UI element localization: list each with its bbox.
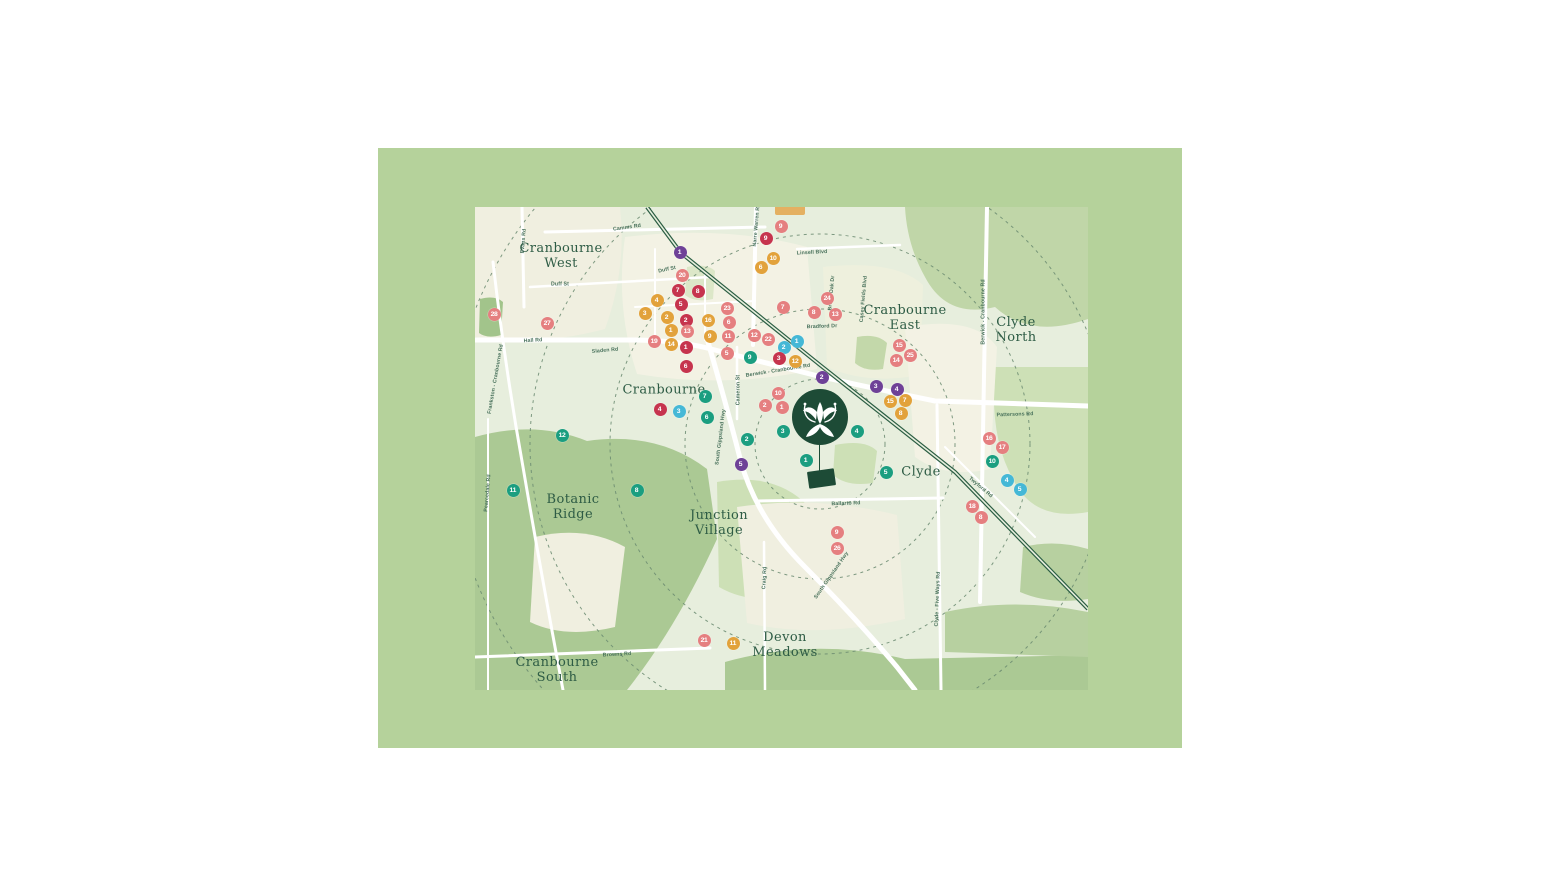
marker-number: 2 [665,313,668,320]
marker-number: 5 [1018,485,1021,492]
marker-number: 21 [701,636,708,643]
marker-number: 14 [668,340,675,347]
map-marker-salmon-19[interactable]: 19 [648,335,661,348]
map-marker-salmon-9[interactable]: 9 [775,220,788,233]
map-marker-salmon-6[interactable]: 6 [723,316,736,329]
map-marker-salmon-28[interactable]: 28 [488,308,501,321]
suburb-label: Cranbourne [622,384,705,399]
map-marker-red-4[interactable]: 4 [654,403,667,416]
marker-number: 3 [781,427,784,434]
marker-number: 1 [804,456,807,463]
marker-number: 1 [684,343,687,350]
map-marker-red-9[interactable]: 9 [760,232,773,245]
map-marker-orange-10[interactable]: 10 [767,252,780,265]
marker-number: 7 [781,303,784,310]
map-marker-purple-2[interactable]: 2 [816,371,829,384]
map-marker-salmon-7[interactable]: 7 [777,301,790,314]
marker-number: 4 [1005,476,1008,483]
map-marker-salmon-11[interactable]: 11 [722,330,735,343]
suburb-label: Botanic Ridge [547,493,600,523]
map-marker-salmon-20[interactable]: 20 [676,269,689,282]
map-marker-orange-12[interactable]: 12 [789,355,802,368]
marker-number: 12 [751,331,758,338]
marker-number: 1 [780,403,783,410]
marker-number: 12 [792,357,799,364]
map-marker-purple-3[interactable]: 3 [870,380,883,393]
marker-number: 24 [824,294,831,301]
map-marker-salmon-14[interactable]: 14 [890,354,903,367]
marker-number: 10 [775,389,782,396]
marker-number: 16 [986,434,993,441]
map-marker-teal-12[interactable]: 12 [556,429,569,442]
flower-icon [798,395,842,439]
map-marker-cyan-1[interactable]: 1 [791,335,804,348]
marker-number: 26 [834,544,841,551]
marker-number: 12 [559,431,566,438]
marker-number: 9 [835,528,838,535]
map-marker-teal-4[interactable]: 4 [851,425,864,438]
map-marker-cyan-3[interactable]: 3 [673,405,686,418]
map-marker-orange-16[interactable]: 16 [702,314,715,327]
marker-number: 15 [887,397,894,404]
marker-number: 25 [907,351,914,358]
map-marker-red-5[interactable]: 5 [675,298,688,311]
map-marker-teal-11[interactable]: 11 [507,484,520,497]
suburb-label: Cranbourne East [863,304,946,334]
map-marker-red-8[interactable]: 8 [692,285,705,298]
road-label: Duff St [551,281,569,287]
marker-number: 23 [724,304,731,311]
marker-number: 2 [782,343,785,350]
map-marker-teal-1[interactable]: 1 [800,454,813,467]
marker-number: 3 [643,309,646,316]
suburb-label: Devon Meadows [752,631,818,661]
marker-number: 8 [635,486,638,493]
marker-number: 14 [893,356,900,363]
marker-number: 9 [764,234,767,241]
marker-number: 4 [655,296,658,303]
map-marker-orange-4[interactable]: 4 [651,294,664,307]
map-marker-orange-2[interactable]: 2 [661,311,674,324]
marker-number: 5 [725,349,728,356]
suburb-label: Clyde North [995,316,1036,346]
map-marker-salmon-12[interactable]: 12 [748,329,761,342]
map-marker-salmon-9[interactable]: 9 [831,526,844,539]
map-marker-salmon-17[interactable]: 17 [996,441,1009,454]
marker-number: 11 [510,486,517,493]
road-label: Cameron St [735,375,741,405]
estate-location-map: Cranbourne WestCranbourneCranbourne East… [475,207,1088,690]
marker-number: 2 [820,373,823,380]
marker-number: 19 [651,337,658,344]
marker-number: 10 [989,457,996,464]
map-marker-red-3[interactable]: 3 [773,352,786,365]
map-marker-salmon-27[interactable]: 27 [541,317,554,330]
map-marker-salmon-24[interactable]: 24 [821,292,834,305]
map-marker-orange-7[interactable]: 7 [899,394,912,407]
marker-number: 22 [765,335,772,342]
marker-number: 3 [874,382,877,389]
map-marker-teal-7[interactable]: 7 [699,390,712,403]
map-marker-cyan-5[interactable]: 5 [1014,483,1027,496]
map-marker-salmon-21[interactable]: 21 [698,634,711,647]
road-label: Ballarto Rd [831,500,860,507]
road-label: Bradford Dr [807,323,838,330]
marker-number: 5 [884,468,887,475]
map-marker-orange-1[interactable]: 1 [665,324,678,337]
map-marker-orange-6[interactable]: 6 [755,261,768,274]
map-marker-orange-9[interactable]: 9 [704,330,717,343]
map-marker-red-6[interactable]: 6 [680,360,693,373]
marker-number: 9 [708,332,711,339]
map-marker-teal-9[interactable]: 9 [744,351,757,364]
marker-number: 6 [684,362,687,369]
marker-number: 6 [759,263,762,270]
marker-number: 1 [678,248,681,255]
road-label: Hall Rd [523,337,542,344]
map-marker-orange-14[interactable]: 14 [665,338,678,351]
marker-number: 10 [770,254,777,261]
marker-number: 1 [795,337,798,344]
map-marker-red-7[interactable]: 7 [672,284,685,297]
marker-number: 8 [899,409,902,416]
marker-number: 3 [677,407,680,414]
map-marker-salmon-8[interactable]: 8 [808,306,821,319]
map-marker-salmon-13[interactable]: 13 [829,308,842,321]
marker-number: 7 [703,392,706,399]
map-marker-salmon-1[interactable]: 1 [776,401,789,414]
map-marker-salmon-13[interactable]: 13 [681,325,694,338]
marker-number: 9 [779,222,782,229]
map-marker-salmon-23[interactable]: 23 [721,302,734,315]
marker-number: 20 [679,271,686,278]
marker-number: 5 [679,300,682,307]
map-marker-salmon-26[interactable]: 26 [831,542,844,555]
road-shield [775,207,805,215]
map-marker-salmon-18[interactable]: 18 [966,500,979,513]
map-marker-red-1[interactable]: 1 [680,341,693,354]
marker-number: 11 [730,639,737,646]
suburb-label: Cranbourne South [515,656,598,686]
map-marker-teal-10[interactable]: 10 [986,455,999,468]
suburb-label: Junction Village [690,509,748,539]
marker-number: 27 [544,319,551,326]
map-marker-teal-6[interactable]: 6 [701,411,714,424]
marker-number: 6 [727,318,730,325]
map-marker-cyan-4[interactable]: 4 [1001,474,1014,487]
map-page-background: Cranbourne WestCranbourneCranbourne East… [378,148,1182,748]
marker-number: 15 [896,341,903,348]
map-marker-salmon-25[interactable]: 25 [904,349,917,362]
map-marker-orange-8[interactable]: 8 [895,407,908,420]
marker-number: 4 [855,427,858,434]
road-label: Craig Rd [761,567,768,590]
map-marker-salmon-5[interactable]: 5 [721,347,734,360]
map-marker-orange-15[interactable]: 15 [884,395,897,408]
marker-number: 3 [777,354,780,361]
marker-number: 2 [763,401,766,408]
map-marker-salmon-22[interactable]: 22 [762,333,775,346]
marker-number: 1 [669,326,672,333]
map-marker-teal-5[interactable]: 5 [880,466,893,479]
marker-number: 2 [684,316,687,323]
marker-number: 11 [725,332,732,339]
map-marker-salmon-8[interactable]: 8 [975,511,988,524]
marker-number: 13 [832,310,839,317]
road-label: Berwick - Cranbourne Rd [980,279,986,344]
map-marker-salmon-2[interactable]: 2 [759,399,772,412]
marker-number: 16 [705,316,712,323]
map-marker-orange-11[interactable]: 11 [727,637,740,650]
marker-number: 8 [979,513,982,520]
map-marker-purple-4[interactable]: 4 [891,383,904,396]
marker-number: 5 [739,460,742,467]
estate-logo [792,389,848,445]
marker-number: 18 [969,502,976,509]
marker-number: 6 [705,413,708,420]
marker-number: 17 [999,443,1006,450]
map-marker-teal-3[interactable]: 3 [777,425,790,438]
marker-number: 13 [684,327,691,334]
map-marker-salmon-10[interactable]: 10 [772,387,785,400]
marker-number: 8 [696,287,699,294]
map-marker-purple-1[interactable]: 1 [674,246,687,259]
marker-number: 2 [745,435,748,442]
map-marker-salmon-16[interactable]: 16 [983,432,996,445]
map-marker-teal-8[interactable]: 8 [631,484,644,497]
marker-number: 4 [658,405,661,412]
marker-number: 7 [676,286,679,293]
map-marker-salmon-15[interactable]: 15 [893,339,906,352]
map-marker-purple-5[interactable]: 5 [735,458,748,471]
map-marker-orange-3[interactable]: 3 [639,307,652,320]
marker-number: 28 [491,310,498,317]
suburb-label: Clyde [901,466,940,481]
suburb-label: Cranbourne West [519,242,602,272]
map-marker-teal-2[interactable]: 2 [741,433,754,446]
marker-number: 4 [895,385,898,392]
marker-number: 9 [748,353,751,360]
marker-number: 7 [903,396,906,403]
marker-number: 8 [812,308,815,315]
